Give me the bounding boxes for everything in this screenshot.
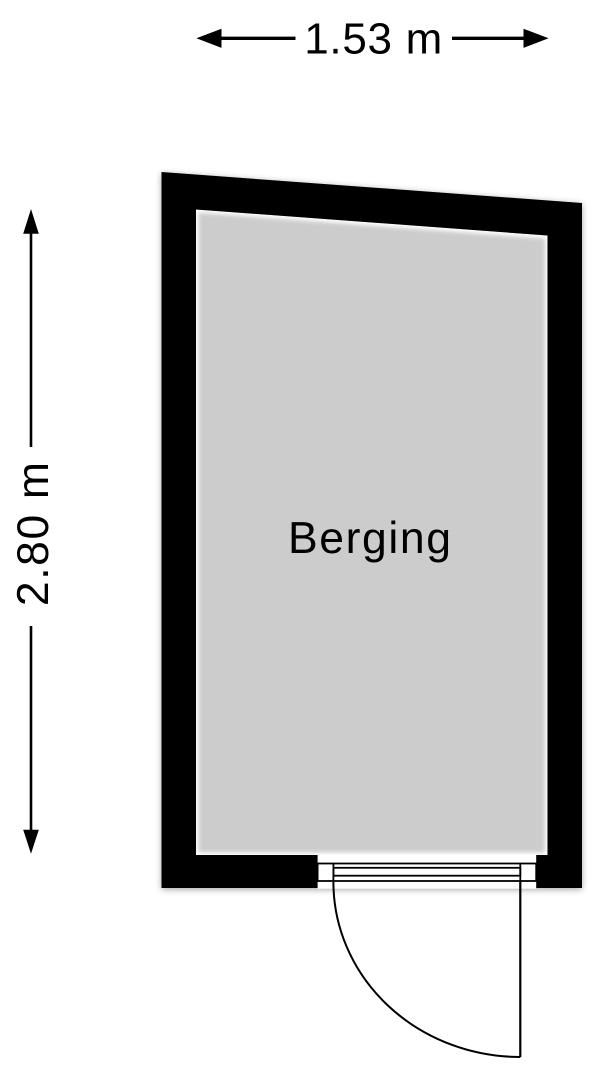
svg-text:2.80 m: 2.80 m [9, 460, 58, 606]
svg-text:1.53 m: 1.53 m [304, 15, 443, 64]
svg-text:Berging: Berging [288, 514, 453, 563]
